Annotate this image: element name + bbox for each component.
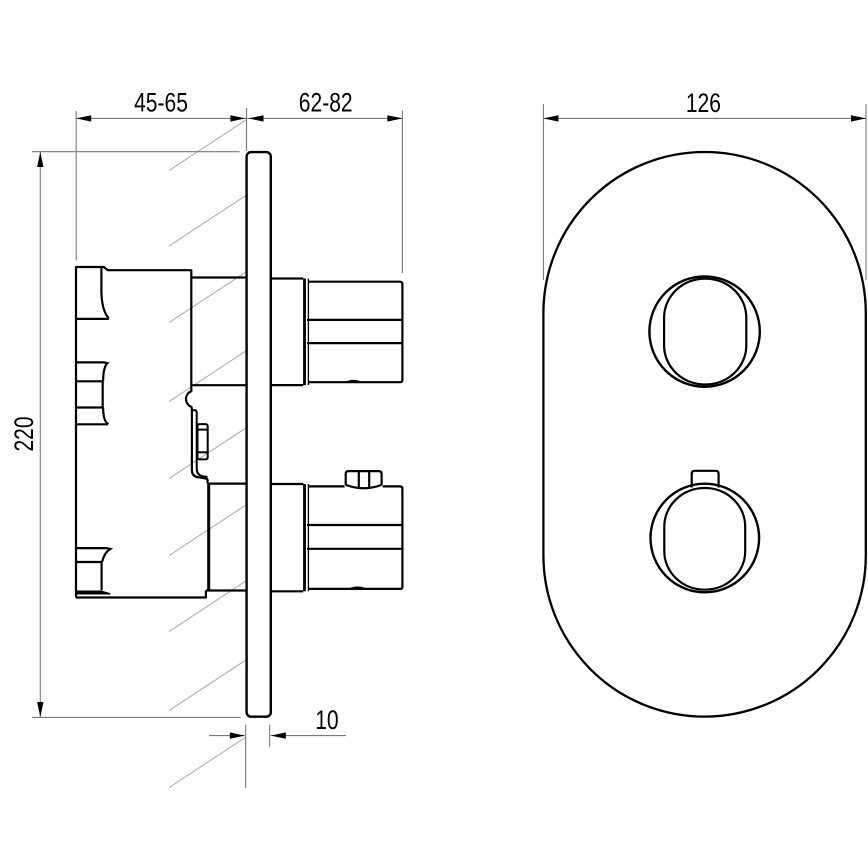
svg-text:220: 220 xyxy=(10,416,40,451)
svg-text:45-65: 45-65 xyxy=(134,88,188,118)
svg-text:62-82: 62-82 xyxy=(299,88,353,118)
svg-text:126: 126 xyxy=(686,89,721,119)
svg-text:10: 10 xyxy=(315,706,338,736)
